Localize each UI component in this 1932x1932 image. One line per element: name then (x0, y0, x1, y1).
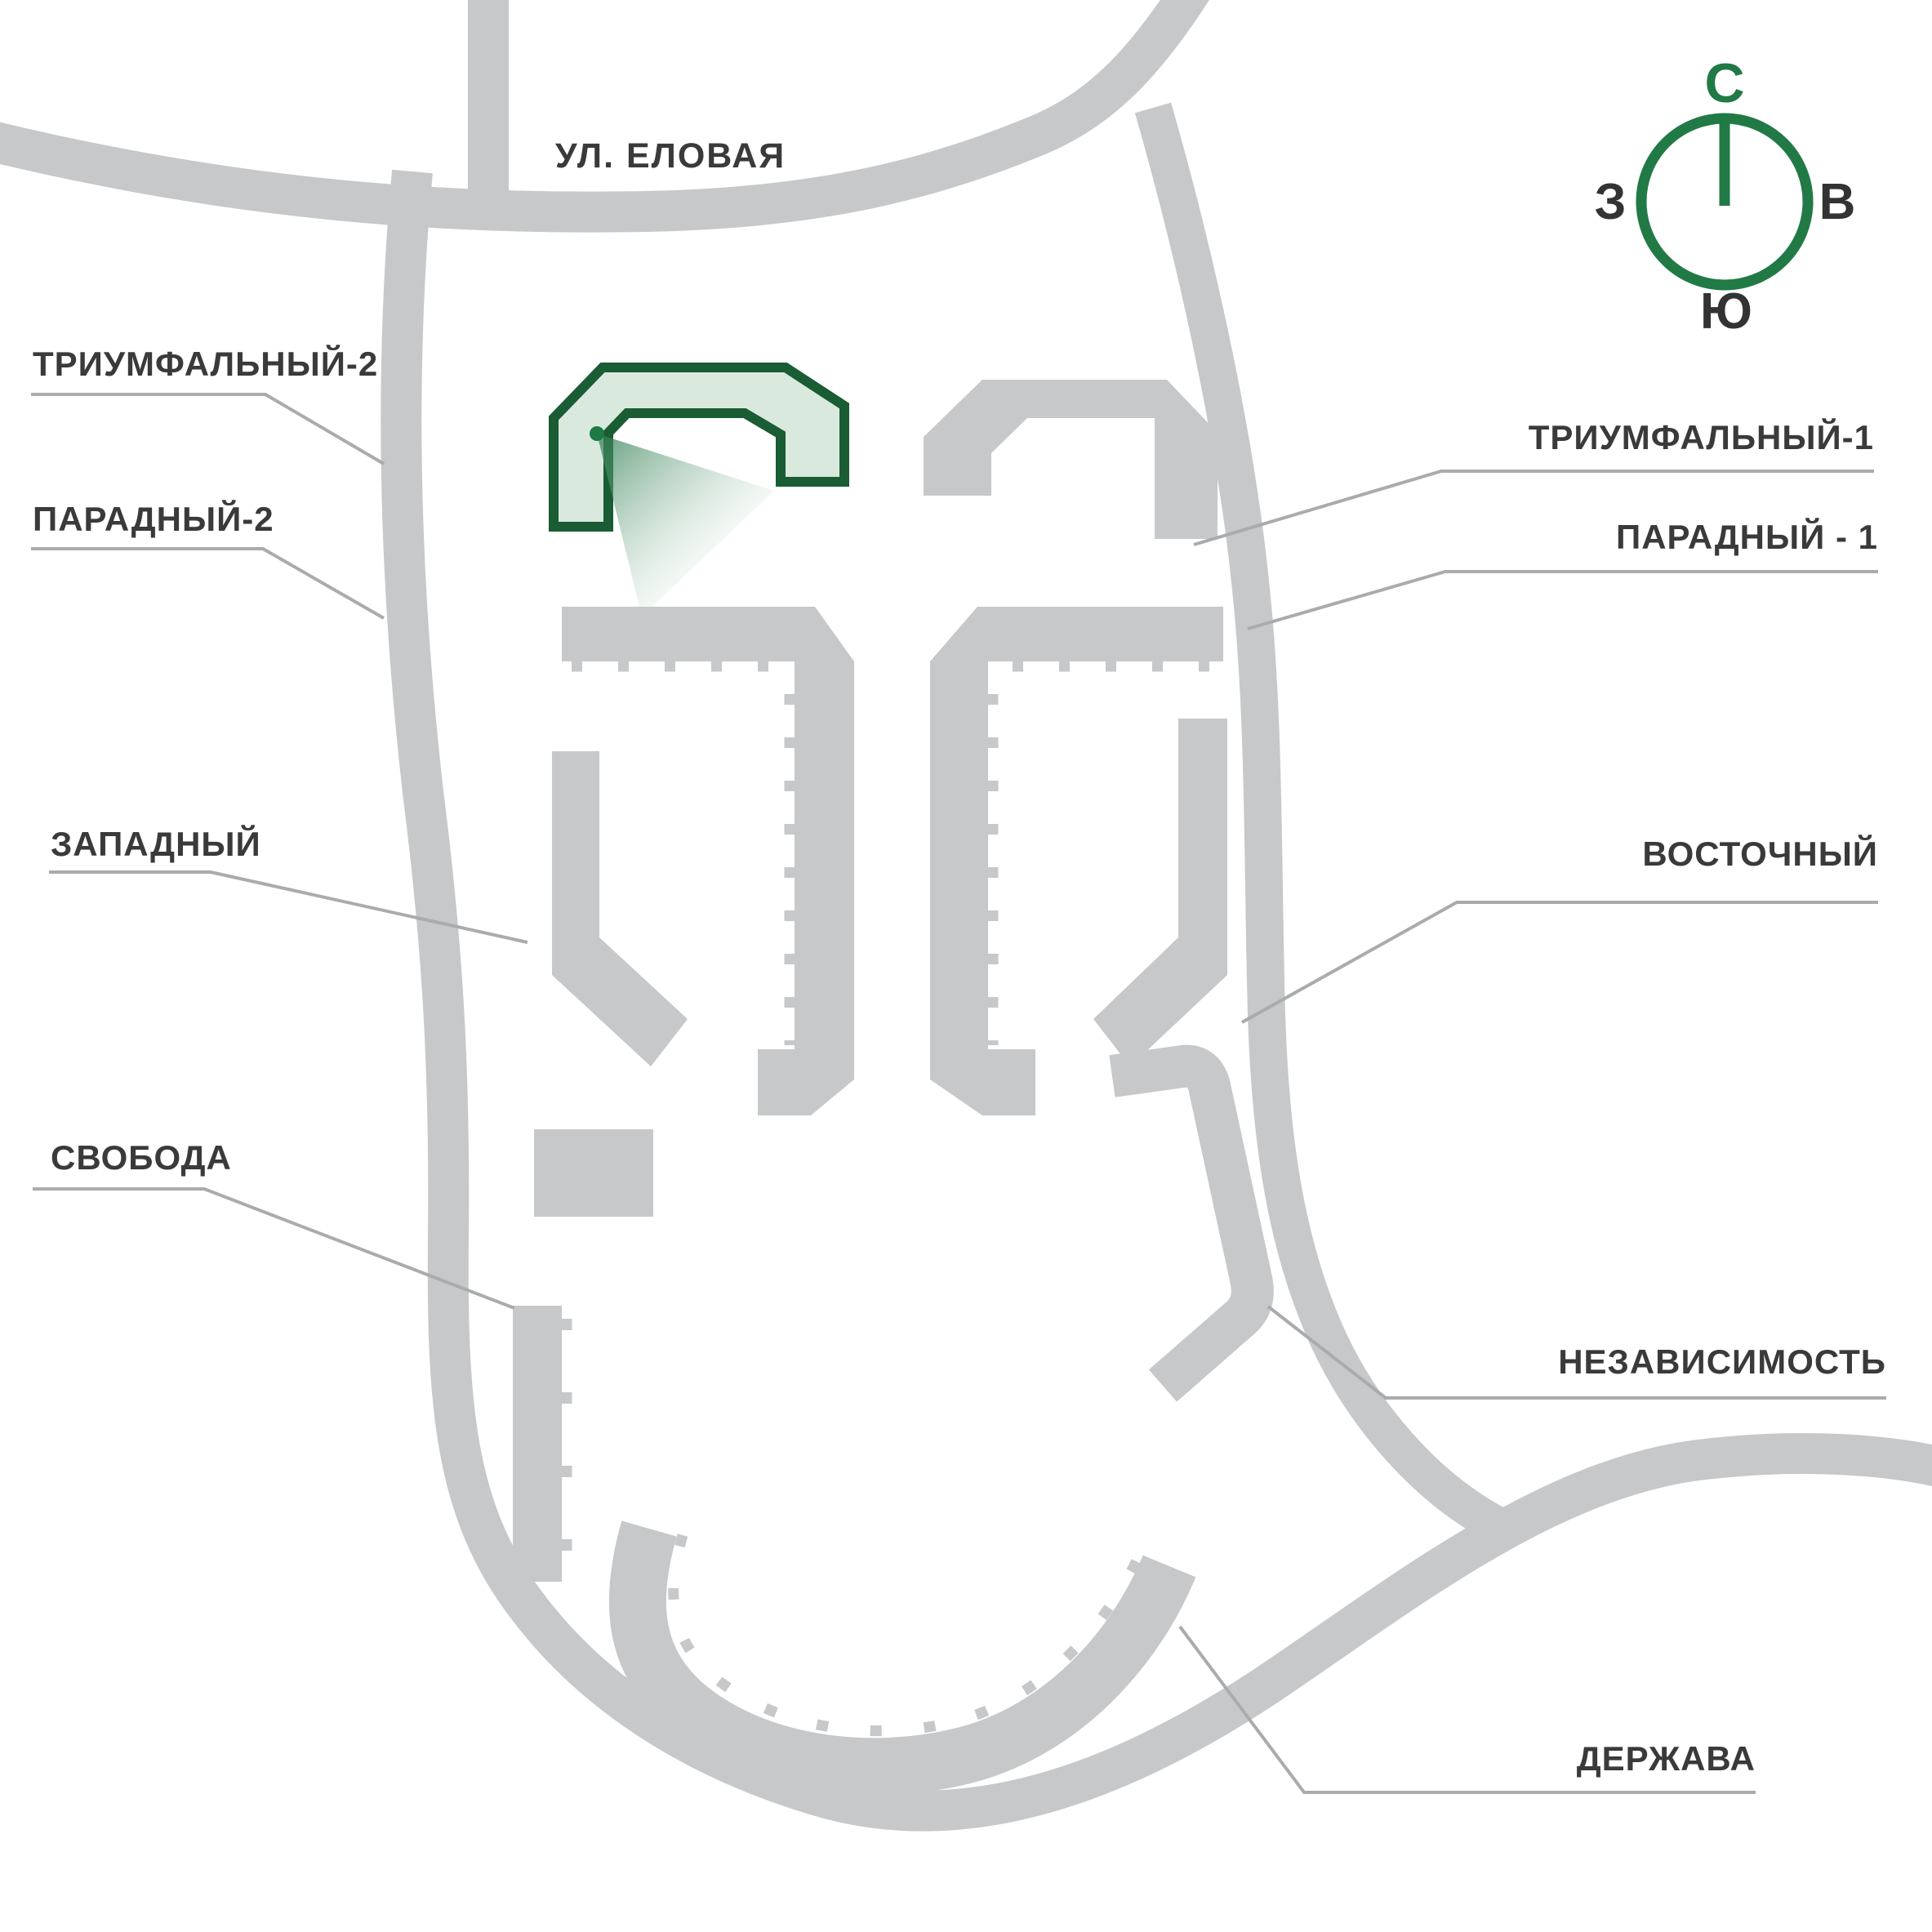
label-nezavisimost[interactable]: НЕЗАВИСИМОСТЬ (1558, 1342, 1886, 1381)
leader-vostochny (1242, 902, 1878, 1022)
label-paradny-1[interactable]: ПАРАДНЫЙ - 1 (1616, 517, 1878, 556)
compass-east: В (1819, 174, 1856, 230)
label-svoboda[interactable]: СВОБОДА (51, 1138, 232, 1177)
building-vostochny[interactable] (1093, 719, 1227, 1066)
label-derzhava[interactable]: ДЕРЖАВА (1577, 1739, 1756, 1778)
building-zapadny[interactable] (552, 751, 688, 1066)
leader-triumfalny-2 (31, 394, 384, 464)
compass-west: З (1595, 174, 1627, 230)
buildings-group (513, 380, 1253, 1766)
compass-north: С (1704, 52, 1744, 114)
building-paradny-2[interactable] (562, 607, 854, 1115)
label-triumfalny-2[interactable]: ТРИУМФАЛЬНЫЙ-2 (33, 344, 378, 383)
highlighted-building-group (554, 367, 844, 617)
building-svoboda[interactable] (513, 1306, 562, 1582)
street-label: УЛ. ЕЛОВАЯ (555, 136, 786, 176)
label-triumfalny-1[interactable]: ТРИУМФАЛЬНЫЙ-1 (1529, 417, 1874, 456)
building-derzhava[interactable] (638, 1529, 1169, 1766)
viewpoint-dot[interactable] (590, 426, 604, 441)
building-triumfalny-1[interactable] (924, 380, 1218, 539)
leader-paradny-1 (1248, 572, 1878, 629)
compass-south: Ю (1700, 283, 1752, 340)
road-elovaya (0, 0, 1195, 212)
label-paradny-2[interactable]: ПАРАДНЫЙ-2 (33, 499, 274, 538)
site-plan-map: УЛ. ЕЛОВАЯ ТРИУМФАЛЬНЫЙ-2 ПАРАДНЫЙ-2 ЗАП… (0, 0, 1932, 1932)
building-small-rect[interactable] (534, 1129, 653, 1217)
building-nezavisimost[interactable] (1112, 1066, 1253, 1386)
label-zapadny[interactable]: ЗАПАДНЫЙ (51, 824, 261, 863)
leader-paradny-2 (31, 549, 384, 618)
view-cone (597, 434, 774, 617)
label-vostochny[interactable]: ВОСТОЧНЫЙ (1642, 834, 1878, 873)
compass-icon: С З В Ю (1595, 52, 1856, 340)
